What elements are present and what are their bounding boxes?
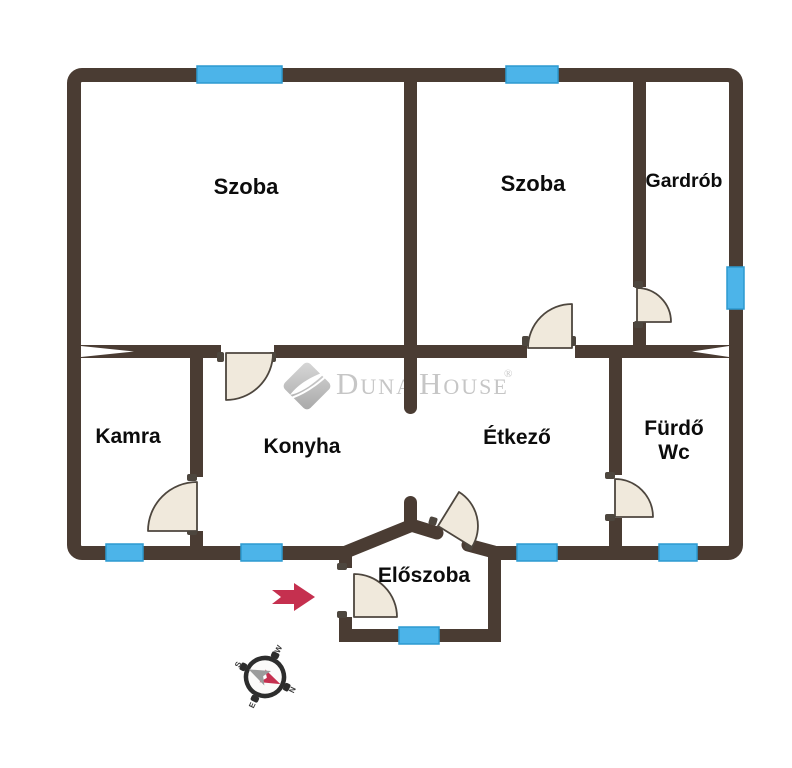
compass-label-north: N [287,685,298,694]
wall-diagonal-right-upper [411,525,437,533]
label-furdo: Fürdő [644,417,703,440]
door-eloszoba-diagonal [438,492,478,547]
label-wc: Wc [658,441,690,464]
label-szoba-right: Szoba [501,171,567,196]
label-etkezo: Étkező [483,426,551,449]
wall-kamra-upper [190,358,203,477]
floor-plan-canvas: Duna House ® [0,0,792,768]
wall-gardrob-upper [633,82,646,287]
jamb-konyha-door-left [217,352,224,362]
label-eloszoba: Előszoba [378,564,471,587]
wall-furdo-lower [609,518,622,546]
window-szoba-right [506,66,558,83]
window-eloszoba [399,627,439,644]
door-gardrob [637,288,671,322]
label-konyha: Konyha [263,435,340,458]
door-szoba-right [528,304,572,348]
jamb-eloszoba-door-top [337,563,347,570]
window-gardrob [727,267,744,309]
door-furdo [615,479,653,517]
wall-eloszoba-right [488,546,501,642]
logo-word-duna: Duna [336,366,414,401]
label-szoba-left: Szoba [214,174,280,199]
dunahouse-watermark: Duna House ® [282,361,513,412]
label-kamra: Kamra [95,425,161,448]
jamb-furdo-door-top [605,472,615,479]
compass-icon: N S E W [220,631,312,723]
wall-middle-center [274,345,527,358]
door-kamra [148,482,197,531]
floor-plan: Duna House ® [0,0,792,768]
window-szoba-left [197,66,282,83]
window-furdo [659,544,697,561]
window-konyha [241,544,282,561]
logo-word-house: House [419,366,509,401]
window-etkezo [517,544,557,561]
jamb-furdo-door-bottom [605,514,615,521]
entrance-arrow-icon [272,583,315,611]
label-gardrob: Gardrób [646,170,723,192]
wall-konyha-etkezo-stub [404,350,417,414]
door-konyha [226,353,273,400]
logo-registered-mark: ® [504,368,512,380]
wall-szoba-divider [404,82,417,345]
jamb-kamra-door-top [187,474,197,481]
jamb-eloszoba-door-bottom [337,611,347,618]
wall-furdo-upper [609,358,622,475]
jamb-gardrob-door-top [634,281,643,288]
window-kamra [106,544,143,561]
